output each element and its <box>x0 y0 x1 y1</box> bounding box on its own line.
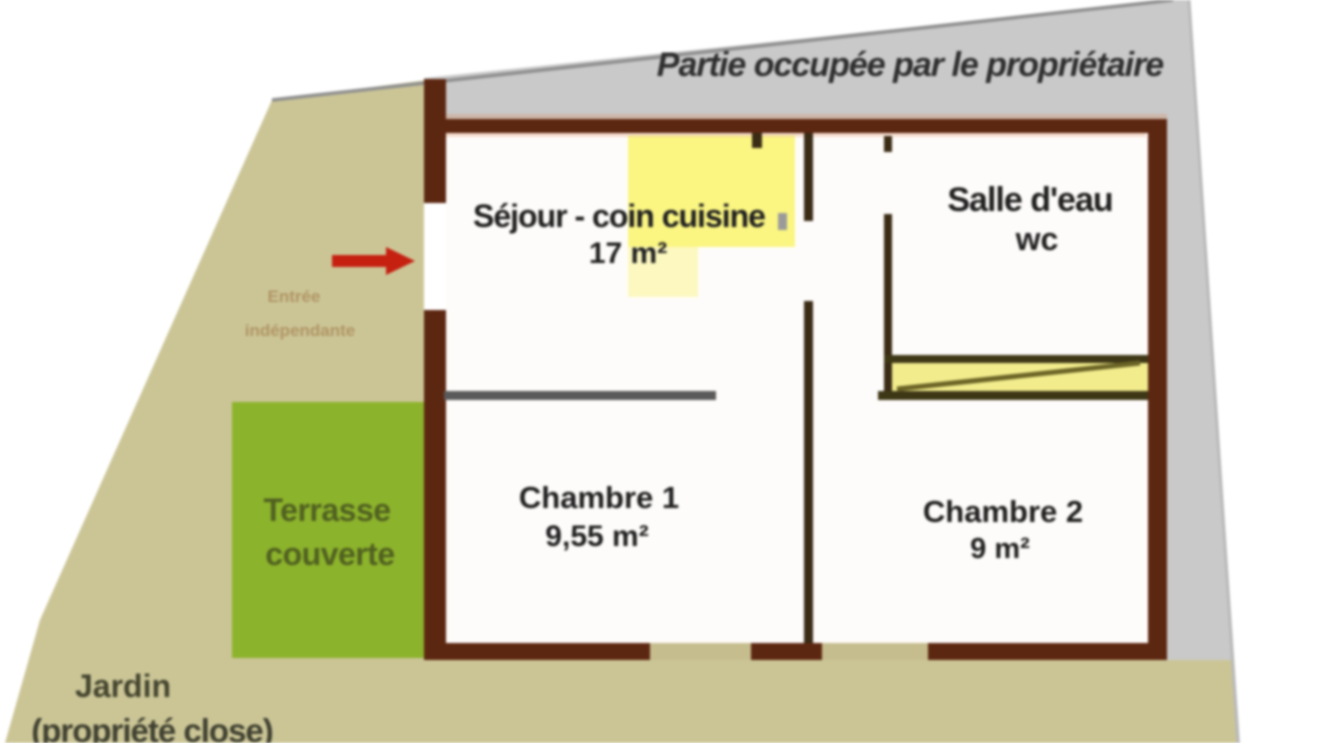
svg-text:indépendante: indépendante <box>245 321 356 340</box>
svg-text:Séjour - coin cuisine: Séjour - coin cuisine <box>473 198 765 234</box>
svg-text:17 m²: 17 m² <box>589 237 667 270</box>
svg-text:couverte: couverte <box>265 536 394 572</box>
svg-text:(propriété close): (propriété close) <box>31 712 273 743</box>
svg-text:Partie occupée par le propriét: Partie occupée par le propriétaire <box>657 46 1164 84</box>
svg-text:9,55 m²: 9,55 m² <box>545 520 648 553</box>
svg-text:Jardin: Jardin <box>75 668 171 704</box>
svg-text:9 m²: 9 m² <box>970 533 1030 565</box>
svg-text:wc: wc <box>1015 221 1059 257</box>
svg-text:Entrée: Entrée <box>268 287 321 306</box>
svg-text:Salle d'eau: Salle d'eau <box>947 181 1112 219</box>
svg-text:Chambre 1: Chambre 1 <box>519 480 679 515</box>
svg-text:Chambre 2: Chambre 2 <box>923 494 1083 529</box>
svg-text:Terrasse: Terrasse <box>263 492 390 528</box>
